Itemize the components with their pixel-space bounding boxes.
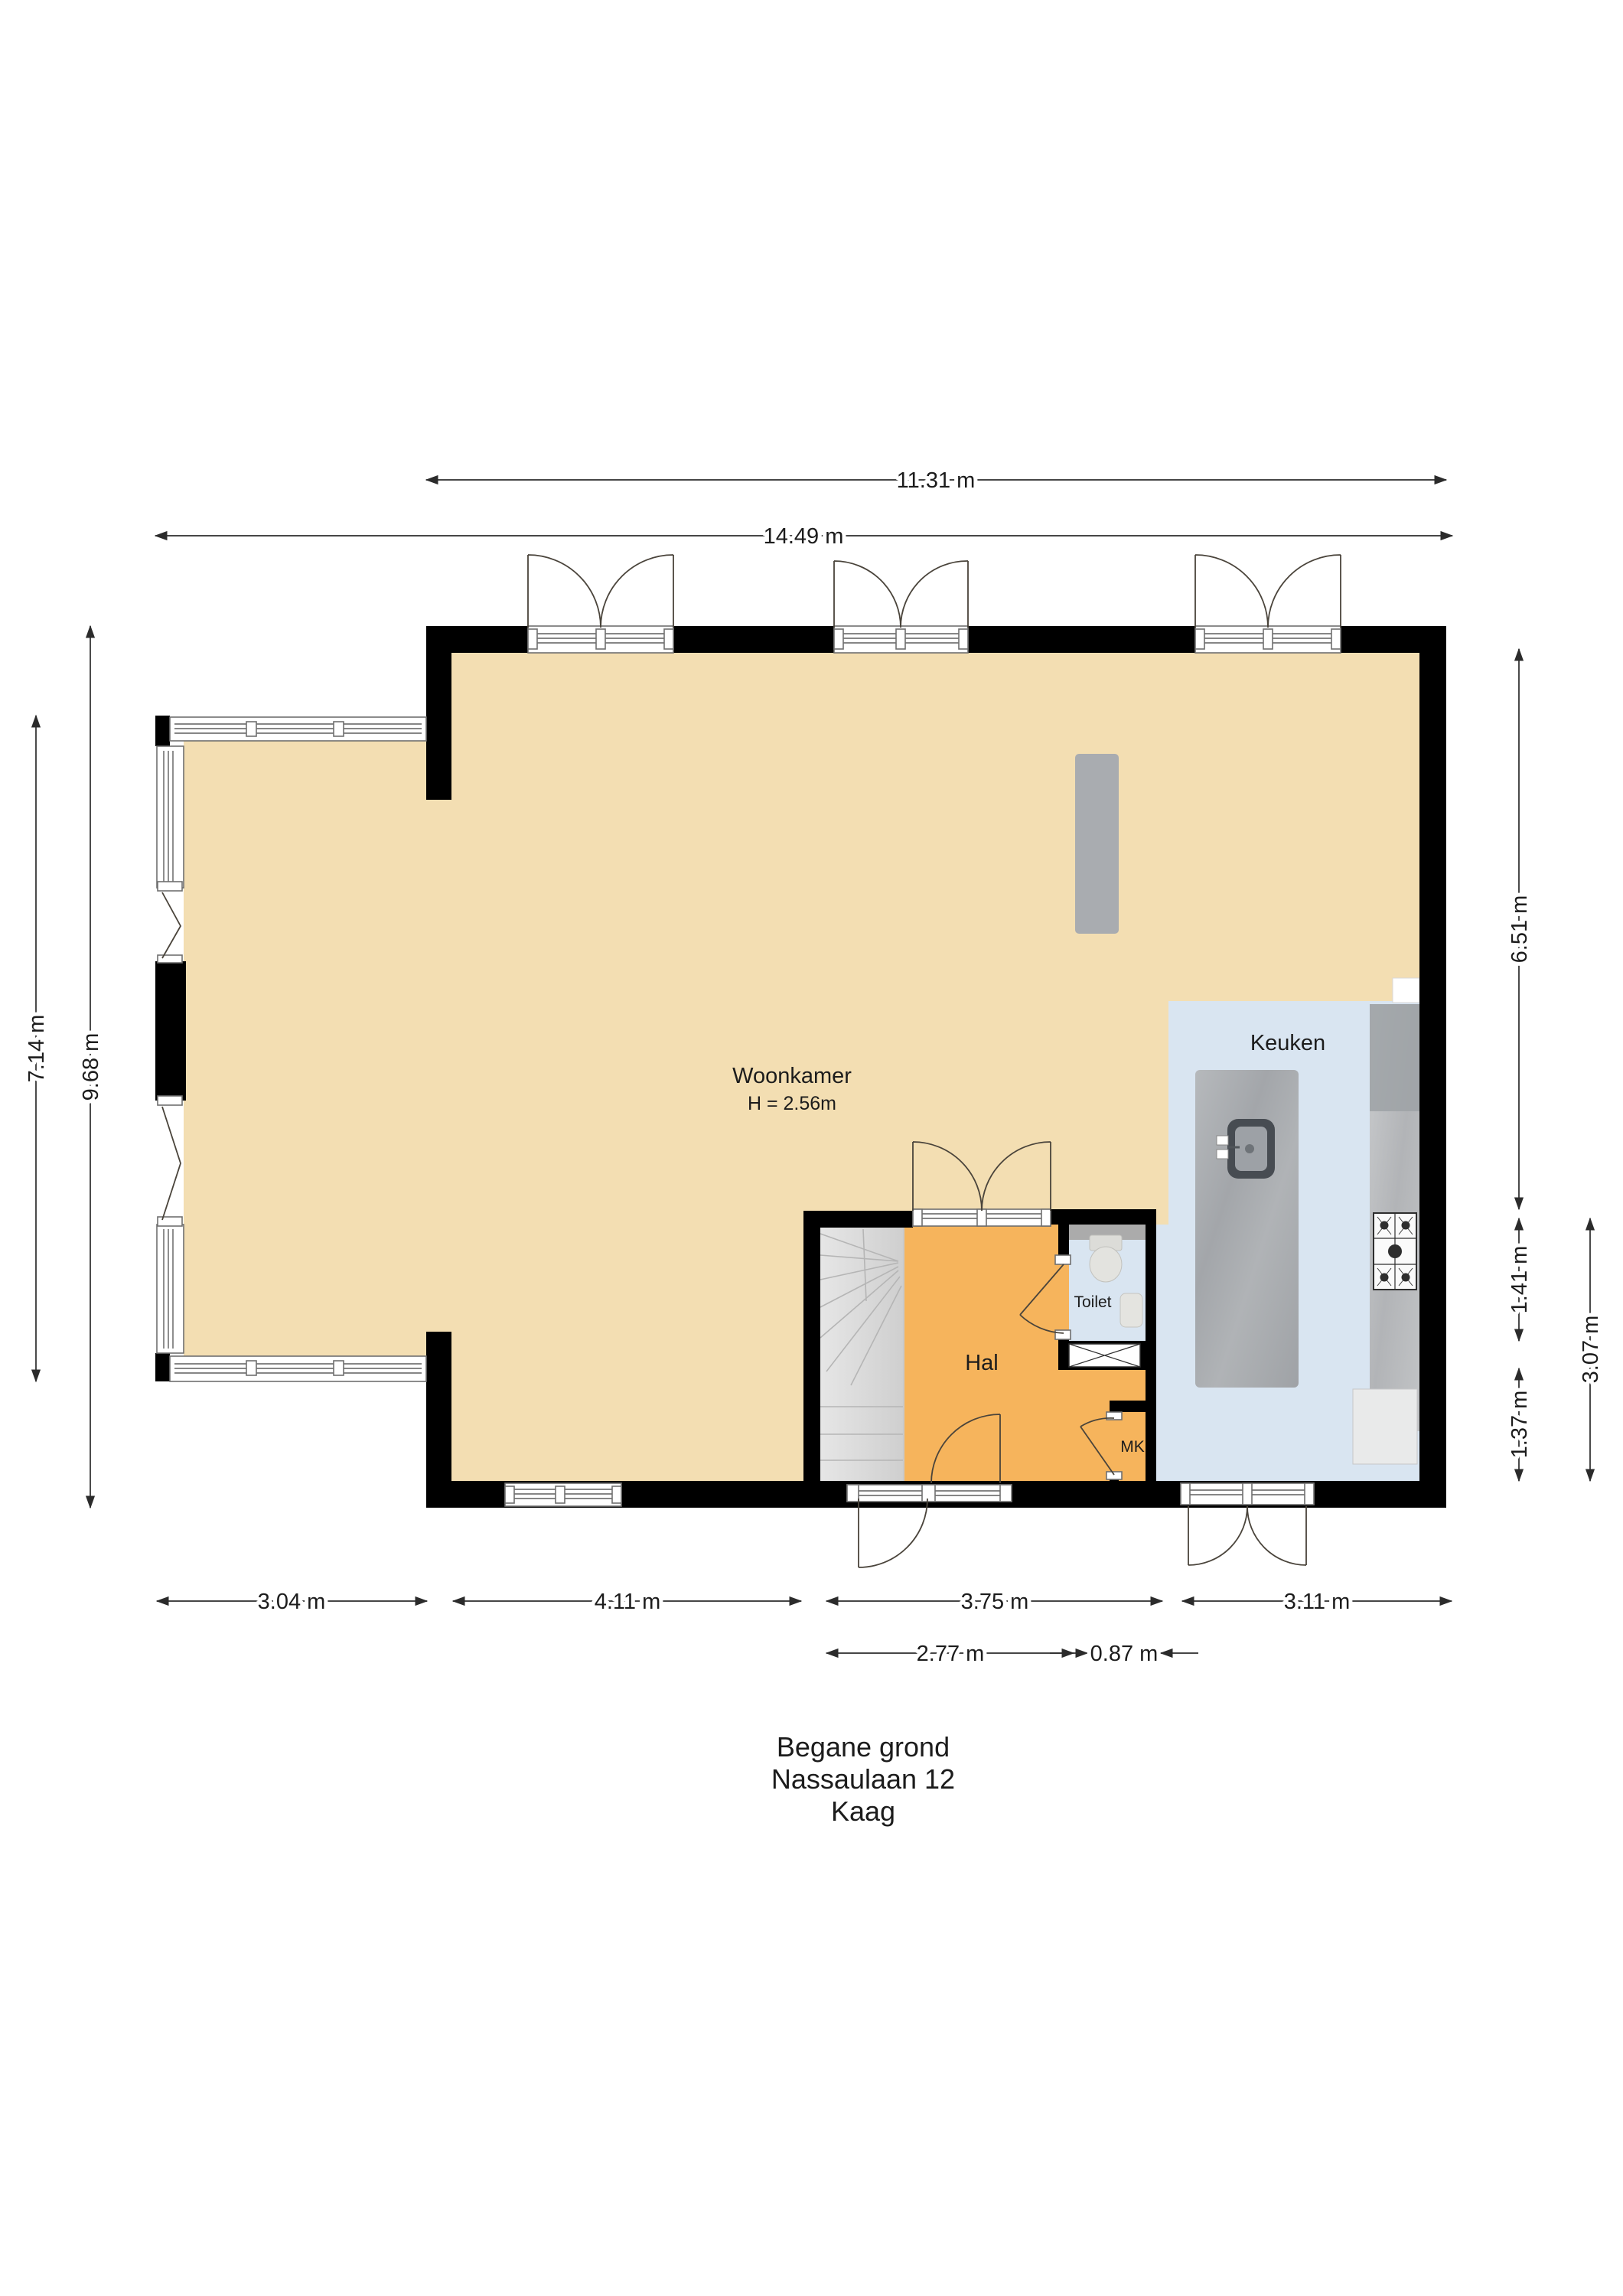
- title-floor: Begane grond: [777, 1731, 950, 1763]
- bay-corner-bottom: [155, 1353, 170, 1381]
- counter-end-box: [1393, 978, 1419, 1003]
- bay-door-upper: [158, 882, 182, 963]
- mk-wall-top: [1110, 1401, 1146, 1412]
- keuken-label: Keuken: [1250, 1031, 1325, 1055]
- toilet-wall-right: [1146, 1209, 1156, 1481]
- shaft-box: [1069, 1344, 1140, 1367]
- stairs-floor: [820, 1228, 903, 1481]
- bay-window-left-upper: [157, 746, 184, 888]
- dim-top-1: 11.31 m: [897, 468, 976, 493]
- dim-bottom-4: 3.11 m: [1284, 1590, 1351, 1614]
- kitchen-counter-upper: [1370, 1004, 1419, 1111]
- dim-bottom-1: 3.04 m: [258, 1590, 326, 1614]
- dim-right-2: 1.41 m: [1507, 1246, 1532, 1314]
- woonkamer-height-note: H = 2.56m: [748, 1093, 836, 1114]
- mk-label: MK: [1120, 1438, 1145, 1456]
- floorplan-page: 11.31 m 14.49 m 7.14 m 9.68 m 6.51 m 1.4…: [0, 0, 1623, 2296]
- dim-right-1: 6.51 m: [1507, 895, 1532, 964]
- dim-bottom-2: 4.11 m: [595, 1590, 661, 1614]
- title-address: Nassaulaan 12: [771, 1763, 955, 1795]
- stair-wall-left: [803, 1211, 820, 1481]
- kitchen-double-doors: [1181, 1483, 1314, 1565]
- wall-step-top: [426, 626, 451, 800]
- bay-door-lower: [158, 1096, 182, 1226]
- garden-doors-1: [528, 555, 673, 653]
- dim-bottom-5: 2.77 m: [917, 1642, 985, 1666]
- dim-right-3: 1.37 m: [1507, 1391, 1532, 1459]
- wall-step-bottom: [426, 1332, 451, 1508]
- title-city: Kaag: [831, 1795, 895, 1827]
- keuken-floor-edge: [1155, 1225, 1168, 1481]
- sink-faucet-icon: [1217, 1136, 1228, 1145]
- bay-window-bottom: [170, 1356, 426, 1381]
- hal-label: Hal: [965, 1351, 999, 1375]
- front-door-outer: [859, 1499, 927, 1567]
- kitchen-island: [1195, 1070, 1299, 1388]
- garden-doors-2: [834, 561, 968, 653]
- kitchen-appliance: [1353, 1389, 1417, 1464]
- woonkamer-label: Woonkamer: [732, 1064, 852, 1088]
- sink-drain-icon: [1245, 1144, 1254, 1153]
- dim-right-4: 3.07 m: [1579, 1316, 1603, 1384]
- chimney-block: [1075, 754, 1119, 934]
- dim-left-1: 7.14 m: [24, 1015, 49, 1083]
- dim-bottom-3: 3.75 m: [961, 1590, 1029, 1614]
- bay-wall-mid: [155, 961, 186, 1101]
- bay-window-top: [170, 717, 426, 741]
- bottom-wall-window: [505, 1483, 621, 1506]
- dim-top-2: 14.49 m: [764, 524, 844, 549]
- wall-right: [1419, 626, 1446, 1508]
- floorplan-drawing: 11.31 m 14.49 m 7.14 m 9.68 m 6.51 m 1.4…: [0, 0, 1623, 2296]
- bay-window-left-lower: [157, 1225, 184, 1353]
- toilet-wall-top: [1051, 1209, 1156, 1225]
- dim-left-2: 9.68 m: [79, 1033, 103, 1101]
- dim-bottom-6: 0.87 m: [1090, 1642, 1159, 1666]
- toilet-sink-icon: [1120, 1293, 1142, 1327]
- stove-icon: [1374, 1213, 1416, 1290]
- toilet-label: Toilet: [1074, 1293, 1111, 1311]
- garden-doors-3: [1195, 555, 1341, 653]
- stair-wall-top: [803, 1211, 913, 1228]
- title-block: Begane grond Nassaulaan 12 Kaag: [771, 1731, 955, 1827]
- bay-floor: [184, 719, 440, 1356]
- toilet-bowl-icon: [1090, 1247, 1122, 1282]
- sink-faucet-icon2: [1217, 1150, 1228, 1159]
- bay-corner-top: [155, 716, 170, 746]
